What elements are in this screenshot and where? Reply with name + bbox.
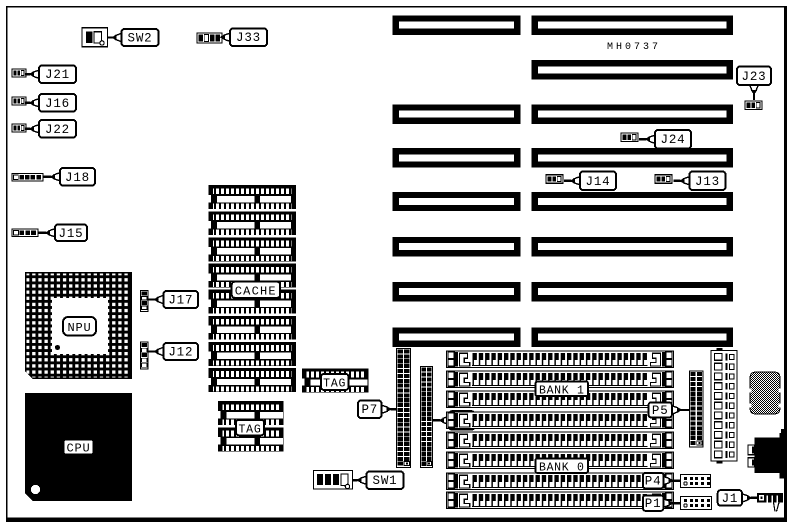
- svg-text:J18: J18: [65, 171, 90, 185]
- svg-text:J14: J14: [586, 175, 611, 189]
- svg-text:BANK 0: BANK 0: [539, 461, 585, 474]
- svg-text:J23: J23: [742, 70, 767, 84]
- svg-text:SW2: SW2: [128, 32, 153, 46]
- svg-text:J22: J22: [45, 123, 70, 137]
- svg-text:J13: J13: [695, 175, 720, 189]
- svg-text:J33: J33: [236, 31, 261, 45]
- svg-text:BANK 1: BANK 1: [539, 384, 585, 397]
- svg-text:P4: P4: [645, 475, 662, 489]
- svg-text:CACHE: CACHE: [235, 285, 277, 299]
- svg-text:P7: P7: [361, 403, 378, 417]
- svg-text:MH0737: MH0737: [607, 42, 661, 53]
- svg-text:J12: J12: [168, 346, 193, 360]
- svg-text:P1: P1: [645, 497, 662, 511]
- svg-text:NPU: NPU: [67, 321, 91, 335]
- svg-text:J16: J16: [45, 97, 70, 111]
- svg-text:CPU: CPU: [66, 442, 90, 456]
- svg-text:J17: J17: [168, 294, 193, 308]
- svg-text:P5: P5: [652, 404, 669, 418]
- svg-text:J24: J24: [661, 133, 686, 147]
- svg-text:J21: J21: [45, 68, 70, 82]
- svg-text:J15: J15: [59, 227, 84, 241]
- svg-text:TAG: TAG: [323, 378, 346, 391]
- svg-text:J1: J1: [722, 492, 739, 506]
- svg-text:TAG: TAG: [238, 423, 261, 436]
- svg-text:SW1: SW1: [373, 474, 398, 488]
